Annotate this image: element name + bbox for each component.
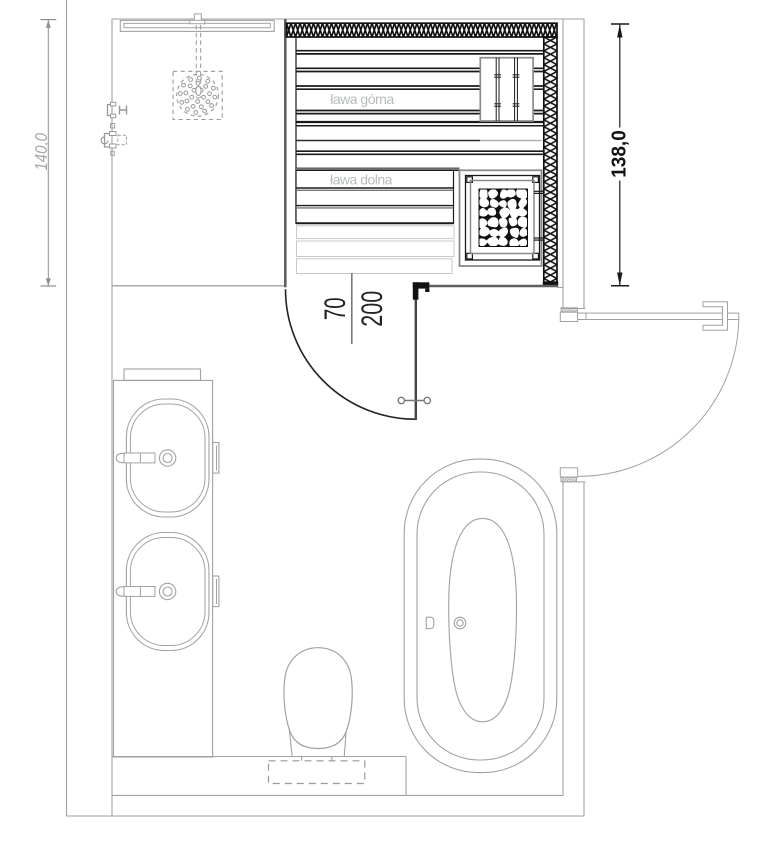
svg-text:ława dolna: ława dolna [330, 172, 393, 188]
svg-text:140,0: 140,0 [31, 132, 52, 170]
svg-text:ława górna: ława górna [330, 91, 394, 107]
svg-text:138,0: 138,0 [608, 130, 631, 178]
svg-text:200: 200 [354, 291, 388, 327]
svg-text:70: 70 [319, 297, 352, 320]
